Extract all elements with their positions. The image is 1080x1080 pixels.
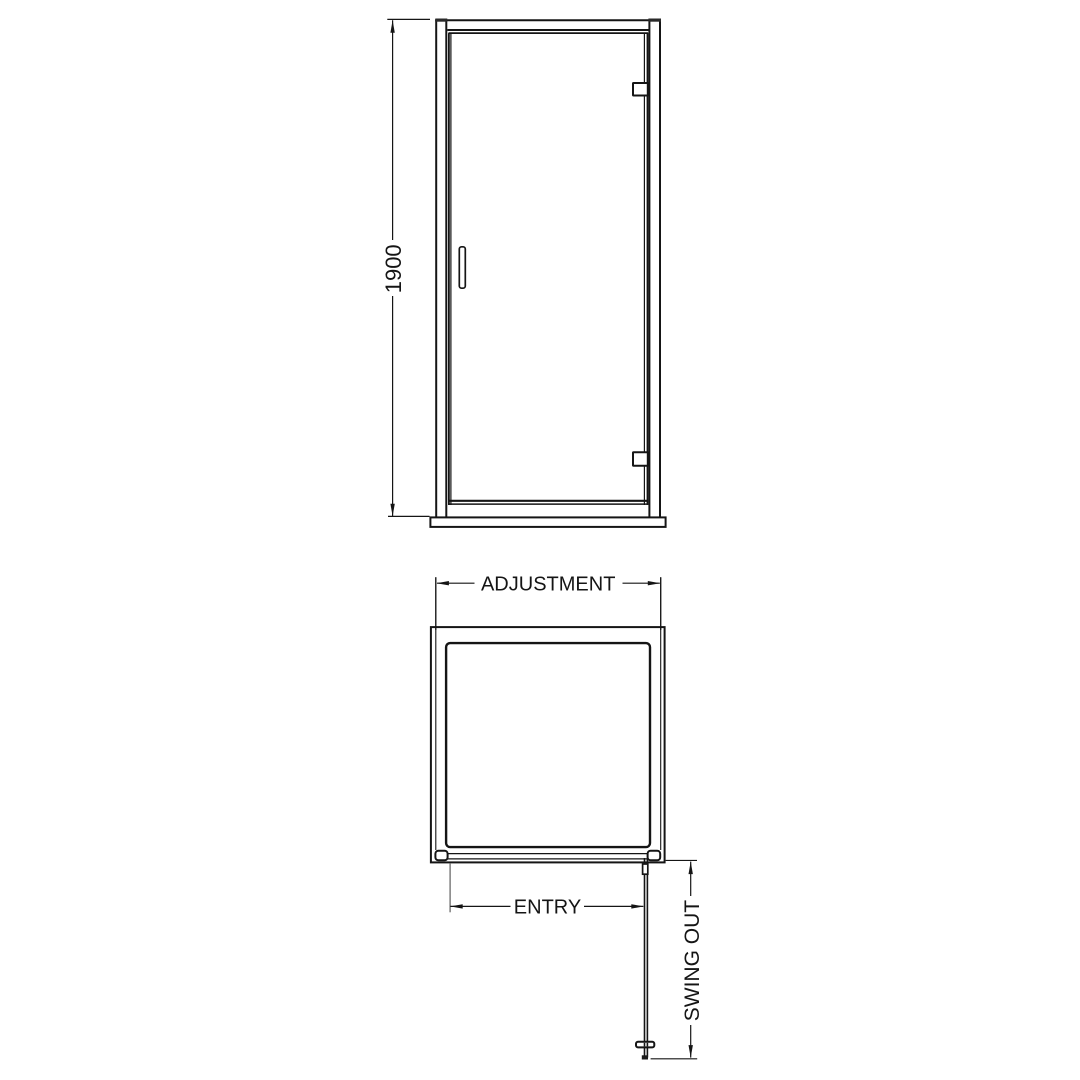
svg-text:ADJUSTMENT: ADJUSTMENT (481, 573, 615, 595)
svg-text:ENTRY: ENTRY (514, 897, 581, 919)
svg-text:SWING OUT: SWING OUT (681, 900, 704, 1021)
svg-text:1900: 1900 (381, 244, 406, 293)
